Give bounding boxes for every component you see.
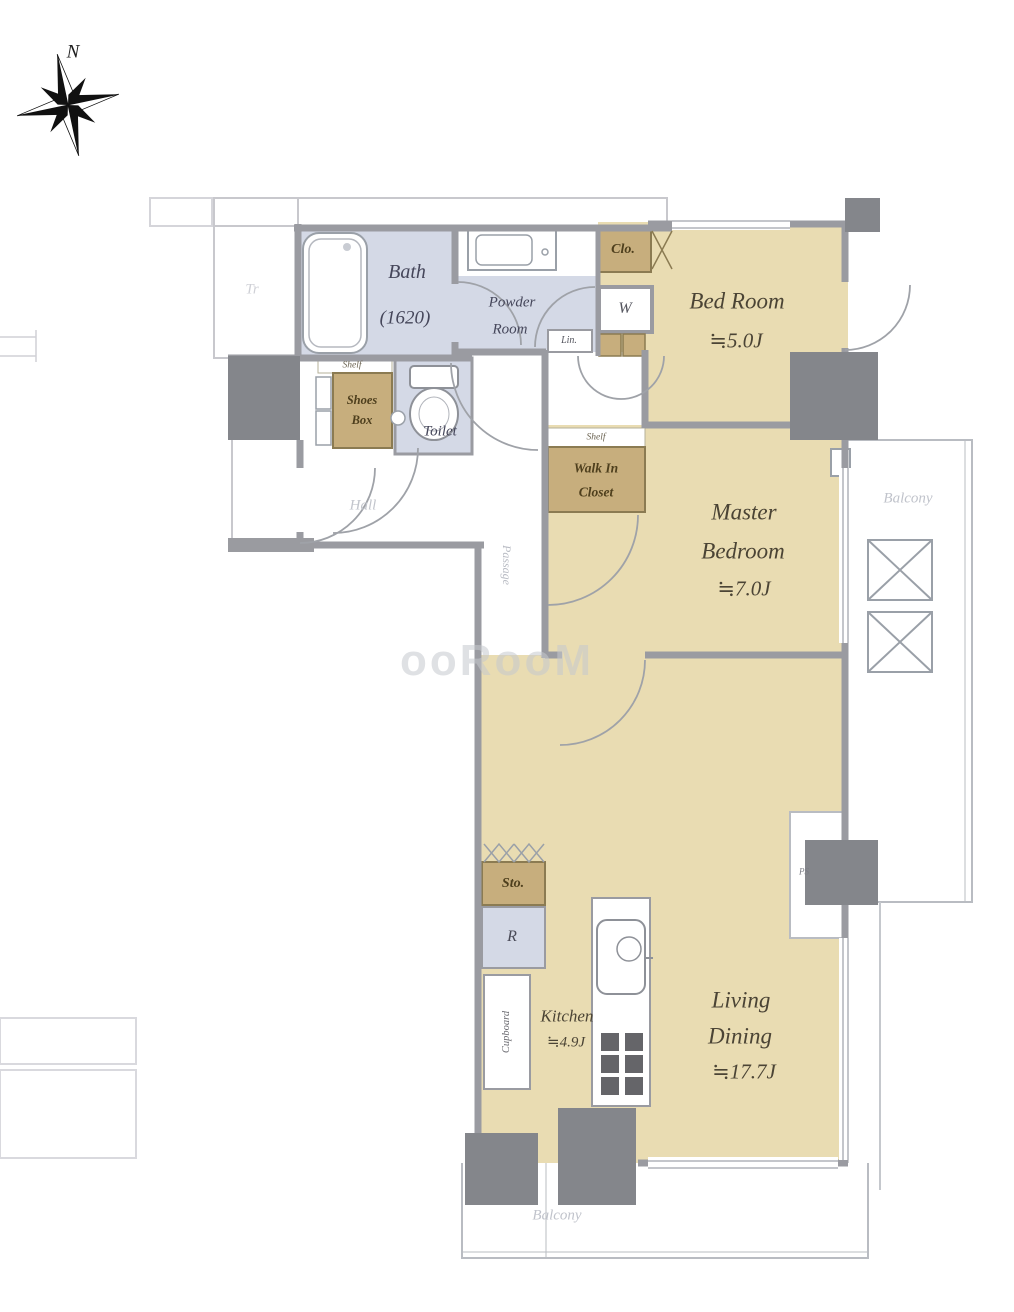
- pipe-space-label: PS: [799, 868, 809, 877]
- washbasin-icon: [468, 230, 556, 270]
- cupboard-label: Cupboard: [502, 1011, 513, 1053]
- washer-label: W: [618, 301, 631, 317]
- living-dining-label-line1: Living: [712, 989, 771, 1012]
- hall-label: Hall: [350, 499, 377, 514]
- shoes-box-label-line2: Box: [352, 414, 373, 427]
- powder-room-label-line2: Room: [493, 323, 528, 338]
- adjacent-unit-outline: [0, 330, 136, 1158]
- bedroom-size-label: ≒5.0J: [709, 331, 762, 352]
- linen-label: Lin.: [561, 336, 577, 346]
- master-bedroom-label-line2: Bedroom: [701, 540, 784, 563]
- master-bedroom-label-line1: Master: [711, 501, 776, 524]
- bath-size-label: (1620): [380, 309, 431, 328]
- wic-label-line2: Closet: [579, 485, 614, 499]
- compass-north-label: N: [67, 43, 80, 62]
- living-dining-size-label: ≒17.7J: [712, 1062, 776, 1083]
- balcony-bottom-label: Balcony: [532, 1209, 581, 1224]
- master-bedroom-size-label: ≒7.0J: [717, 579, 770, 600]
- closet-label: Clo.: [611, 243, 635, 257]
- trunk-room-label: Tr: [245, 283, 258, 298]
- floor-plan: N Tr Bath (1620) Powder Room Toilet Hall…: [0, 0, 1014, 1312]
- balcony-hatch-icon: [868, 540, 932, 672]
- watermark: ooRooM: [400, 636, 594, 686]
- storage-label: Sto.: [502, 877, 524, 891]
- wic-label-line1: Walk In: [574, 461, 618, 475]
- shoes-shelf-label: Shelf: [343, 361, 362, 371]
- shoes-box-label-line1: Shoes: [347, 394, 378, 407]
- fridge-label: R: [507, 929, 517, 945]
- bath-label: Bath: [388, 262, 426, 282]
- toilet-label: Toilet: [423, 425, 457, 440]
- living-dining-label-line2: Dining: [708, 1025, 772, 1048]
- kitchen-label: Kitchen: [541, 1008, 594, 1025]
- bathtub-icon: [303, 233, 367, 353]
- passage-label: Passage: [501, 545, 513, 585]
- kitchen-counter: [592, 898, 653, 1106]
- bedroom-label-line1: Bed Room: [689, 290, 784, 313]
- balcony-right-label: Balcony: [883, 492, 932, 507]
- wic-shelf-label: Shelf: [587, 433, 606, 443]
- kitchen-size-label: ≒4.9J: [547, 1036, 585, 1051]
- powder-room-label-line1: Powder: [489, 296, 536, 311]
- kitchen-sink-icon: [597, 920, 653, 994]
